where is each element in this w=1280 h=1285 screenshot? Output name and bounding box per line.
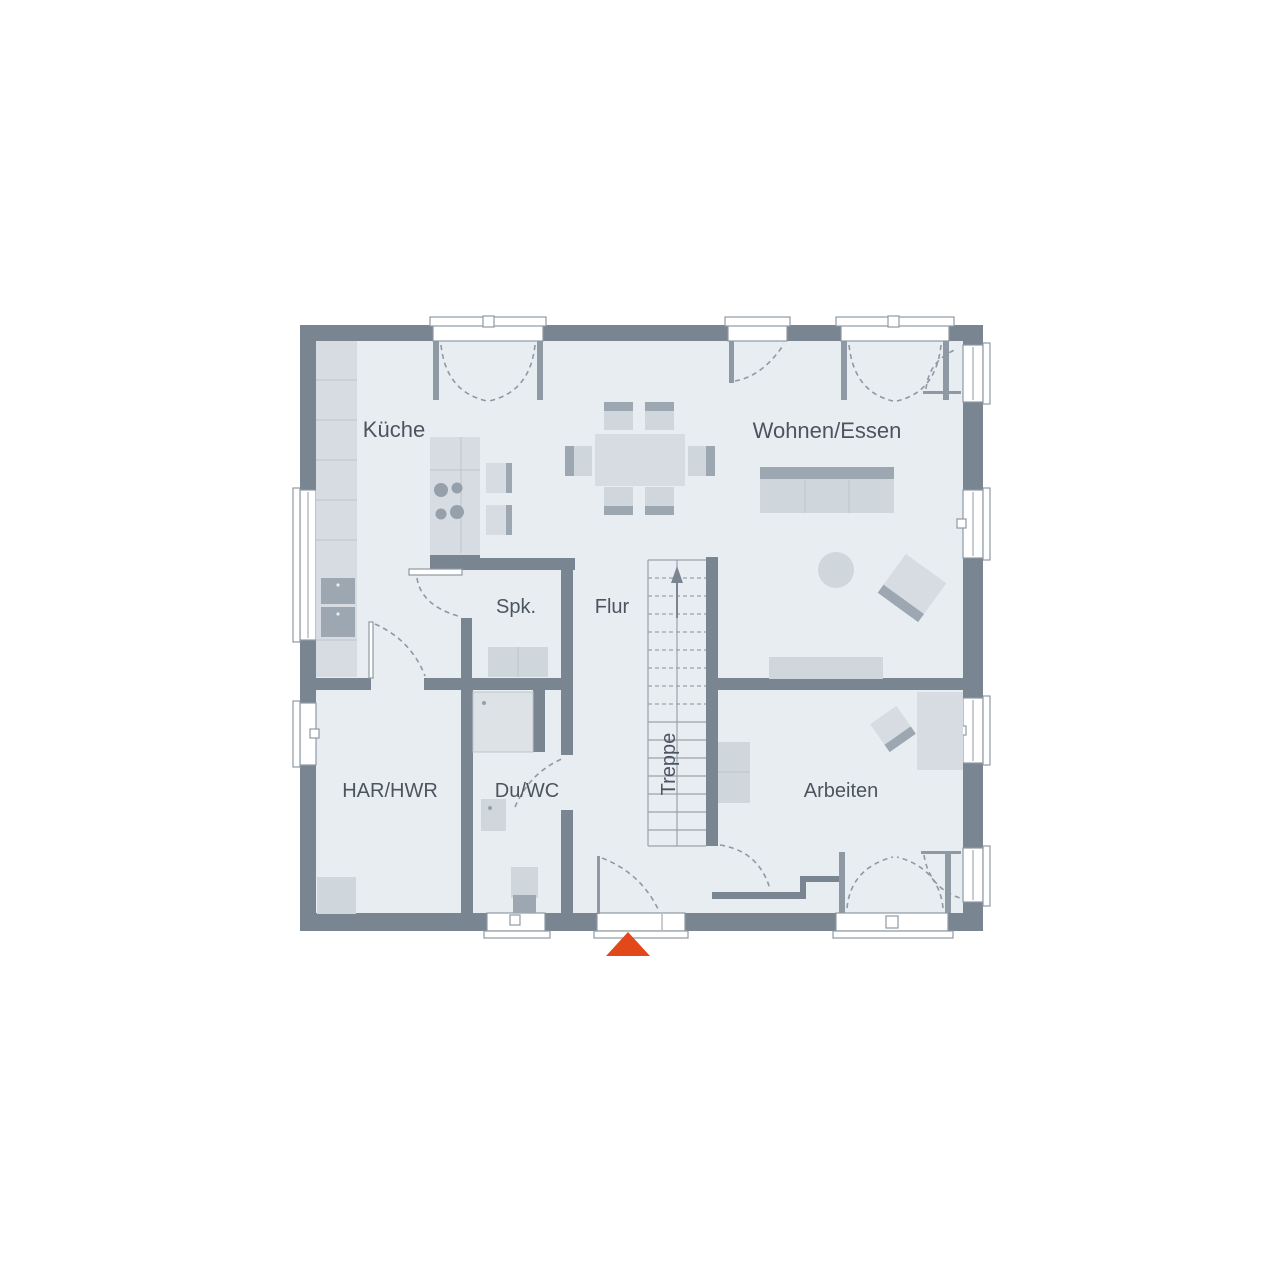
shelf <box>718 742 750 803</box>
floor-plan-canvas: Küche Wohnen/Essen Spk. Flur Treppe HAR/… <box>0 0 1280 1280</box>
pantry-cabinet <box>488 647 548 677</box>
shower <box>473 692 533 752</box>
room-label-duwc: Du/WC <box>495 780 559 802</box>
bar-stool <box>486 463 512 493</box>
room-label-har: HAR/HWR <box>342 780 438 802</box>
har-cabinet <box>317 877 356 914</box>
sofa <box>760 467 894 513</box>
room-label-wohnen: Wohnen/Essen <box>753 418 902 443</box>
washbasin <box>481 799 506 831</box>
room-label-treppe: Treppe <box>658 733 680 796</box>
sideboard <box>769 657 883 679</box>
left-window-har <box>293 701 319 767</box>
floor-plan-page: Küche Wohnen/Essen Spk. Flur Treppe HAR/… <box>0 0 1280 1285</box>
bar-stool <box>486 505 512 535</box>
room-label-spk: Spk. <box>496 596 536 618</box>
left-window-kitchen <box>293 488 316 642</box>
kitchen-counter <box>316 341 357 677</box>
room-label-kueche: Küche <box>363 417 425 442</box>
toilet <box>511 867 538 913</box>
kitchen-island <box>430 437 480 555</box>
dining-table <box>595 434 685 486</box>
coffee-table <box>818 552 854 588</box>
room-label-flur: Flur <box>595 596 630 618</box>
room-label-arbeiten: Arbeiten <box>804 780 879 802</box>
desk <box>917 692 963 770</box>
bottom-window-duwc <box>484 913 550 938</box>
